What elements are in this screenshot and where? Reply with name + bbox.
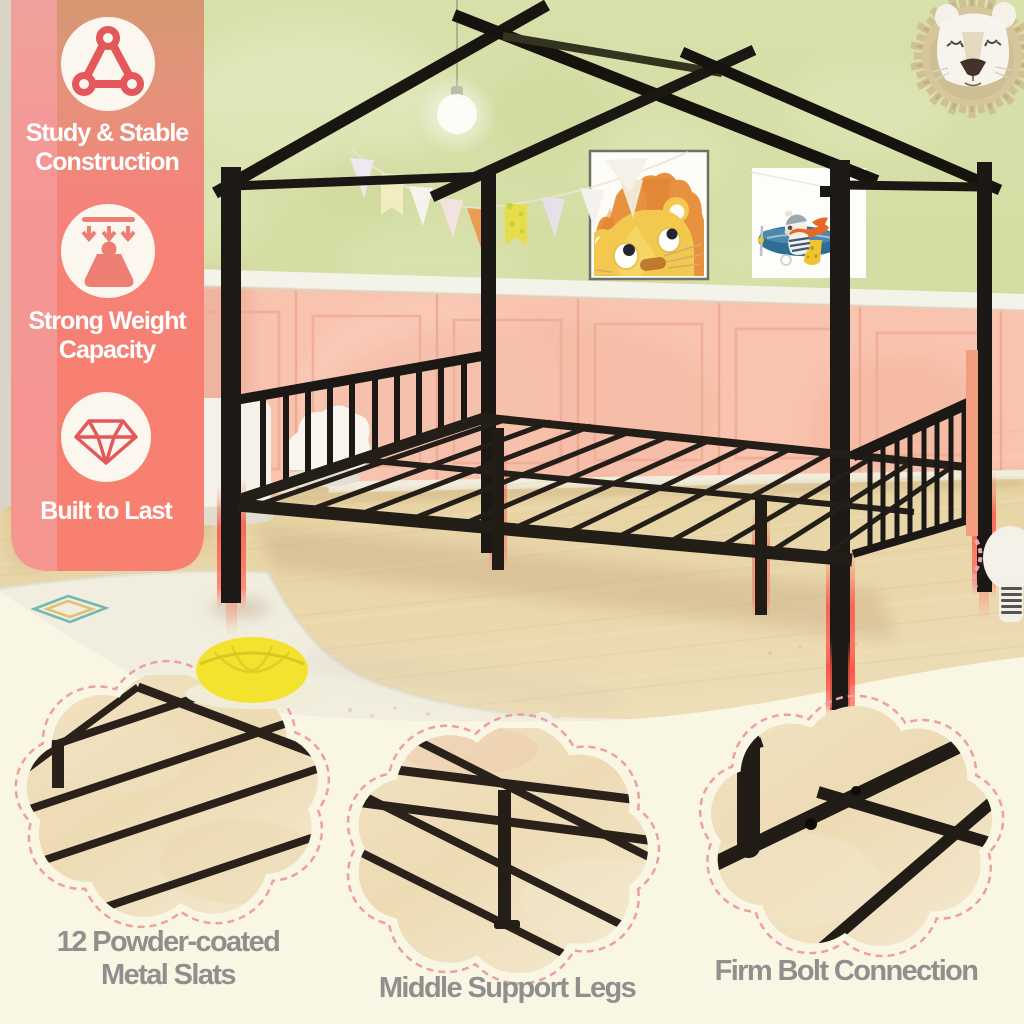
svg-text:12 Powder-coated: 12 Powder-coated: [57, 926, 280, 958]
svg-text:Study & Stable: Study & Stable: [26, 119, 190, 147]
svg-text:Metal Slats: Metal Slats: [101, 959, 235, 991]
svg-text:Capacity: Capacity: [59, 336, 156, 364]
svg-text:Firm Bolt Connection: Firm Bolt Connection: [715, 955, 978, 987]
svg-text:Strong Weight: Strong Weight: [28, 307, 187, 335]
svg-text:Construction: Construction: [35, 148, 179, 176]
svg-text:Built to Last: Built to Last: [40, 497, 173, 525]
svg-text:Middle Support Legs: Middle Support Legs: [379, 972, 636, 1004]
